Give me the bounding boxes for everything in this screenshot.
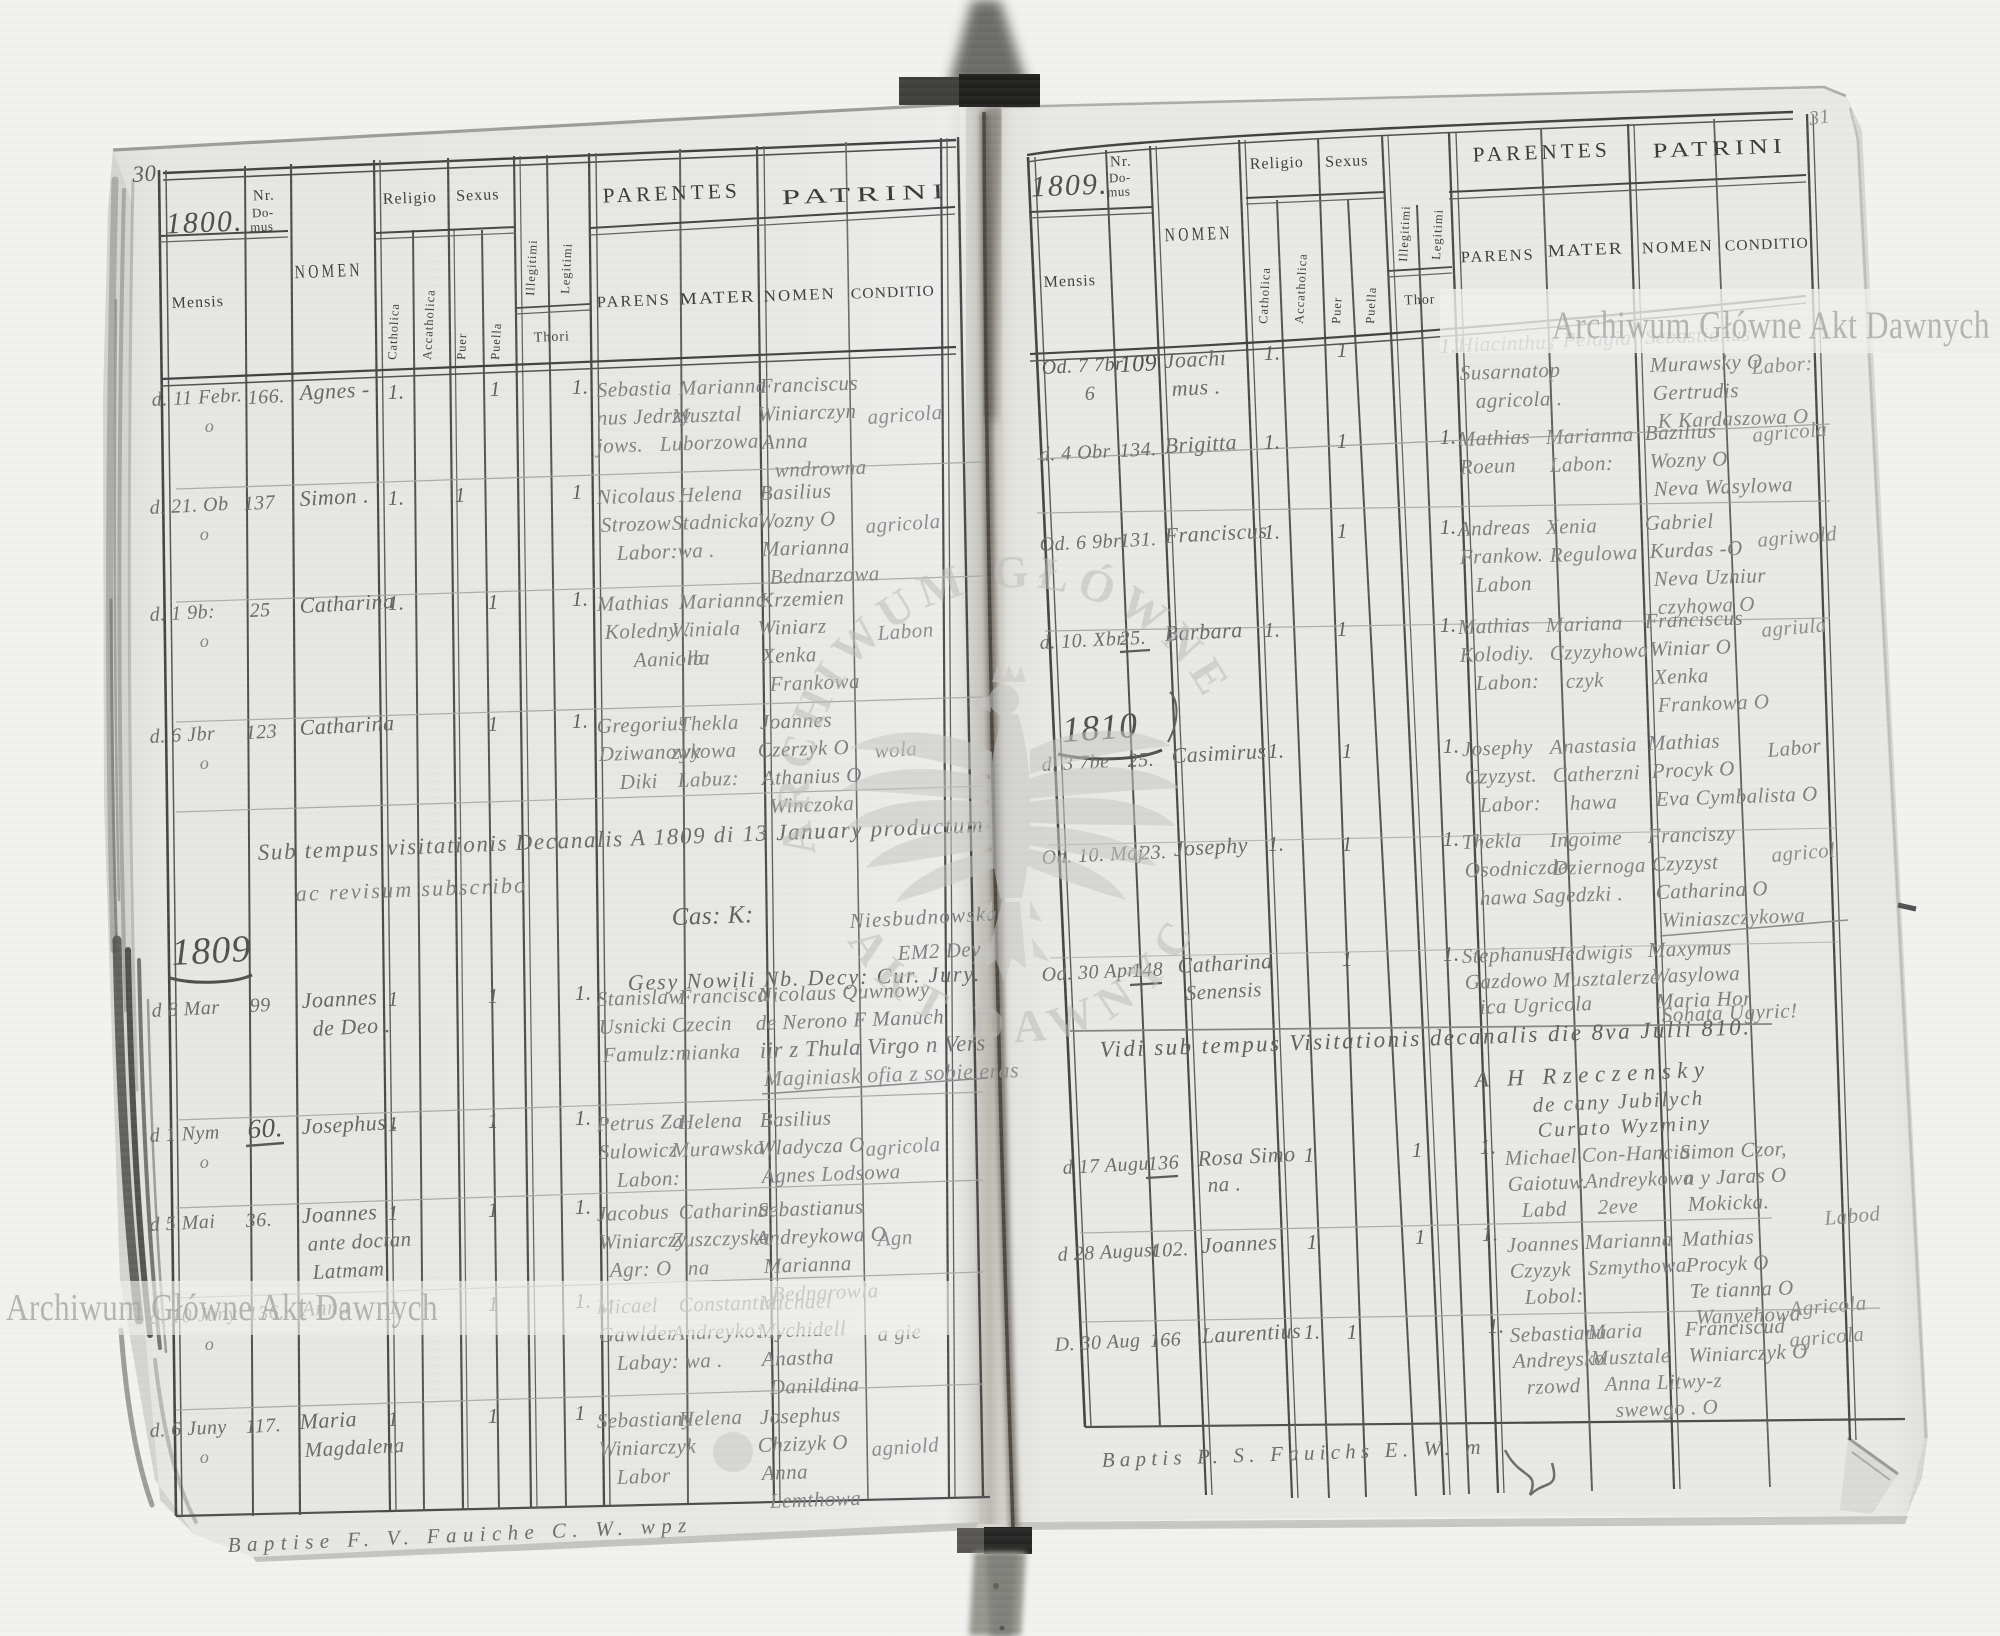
svg-text:Labor:: Labor: — [615, 539, 678, 565]
svg-text:Lemthowa: Lemthowa — [768, 1486, 861, 1513]
svg-text:Czyzyhowa: Czyzyhowa — [1549, 638, 1649, 665]
svg-text:Labod: Labod — [1822, 1201, 1881, 1230]
svg-text:166: 166 — [1149, 1328, 1182, 1352]
svg-text:31: 31 — [1807, 105, 1832, 130]
svg-text:jows.: jows. — [593, 432, 643, 458]
svg-text:Josephy: Josephy — [1461, 735, 1533, 761]
svg-text:Gregorius: Gregorius — [596, 711, 687, 738]
svg-text:Thekla: Thekla — [1461, 828, 1522, 854]
svg-text:30: 30 — [131, 160, 158, 187]
svg-text:D. 30 Aug: D. 30 Aug — [1053, 1330, 1141, 1357]
svg-text:d 8 Mar: d 8 Mar — [151, 996, 220, 1022]
svg-text:1.: 1. — [571, 374, 589, 399]
svg-text:Casimirus: Casimirus — [1171, 738, 1267, 768]
svg-text:Nr.: Nr. — [253, 188, 275, 205]
svg-text:Winiarczyn: Winiarczyn — [757, 399, 856, 426]
svg-text:na .: na . — [1207, 1171, 1242, 1197]
svg-text:25.: 25. — [1127, 749, 1155, 772]
svg-text:Szmythowa: Szmythowa — [1587, 1253, 1687, 1280]
svg-text:Sebastia: Sebastia — [596, 375, 672, 402]
svg-text:Mathias: Mathias — [1456, 424, 1530, 451]
svg-text:o: o — [199, 631, 209, 651]
svg-text:1.: 1. — [387, 590, 405, 615]
svg-text:Mensis: Mensis — [1043, 272, 1096, 291]
svg-text:Maria: Maria — [1586, 1318, 1643, 1344]
svg-text:Marianna: Marianna — [1544, 422, 1634, 449]
svg-text:d. 6 Jbr: d. 6 Jbr — [149, 723, 216, 748]
svg-text:Joachi: Joachi — [1164, 345, 1227, 373]
svg-text:1: 1 — [1336, 519, 1348, 543]
svg-text:o: o — [199, 1152, 209, 1172]
svg-text:Puella: Puella — [1363, 286, 1379, 324]
svg-text:Frankow.: Frankow. — [1458, 542, 1543, 569]
svg-text:Winiala: Winiala — [671, 616, 741, 642]
svg-text:Labor:: Labor: — [1478, 791, 1541, 817]
svg-text:wa .: wa . — [685, 1348, 723, 1373]
svg-text:Gertrudis: Gertrudis — [1652, 378, 1739, 405]
svg-text:Mathias: Mathias — [1680, 1224, 1754, 1251]
svg-text:Labon:: Labon: — [615, 1166, 680, 1192]
svg-text:Catherzni: Catherzni — [1552, 760, 1640, 787]
svg-text:1: 1 — [387, 1407, 399, 1431]
svg-text:123: 123 — [245, 720, 278, 744]
svg-text:Labon: Labon — [1474, 571, 1532, 597]
svg-text:Agnes Lodsowa: Agnes Lodsowa — [759, 1159, 901, 1188]
svg-text:1: 1 — [487, 590, 499, 614]
svg-text:n y Jaras O: n y Jaras O — [1683, 1162, 1787, 1190]
svg-text:Catharina: Catharina — [299, 710, 395, 740]
svg-text:Labor: Labor — [1765, 733, 1822, 762]
svg-text:MATER: MATER — [1547, 239, 1624, 261]
svg-text:Andreykowa O: Andreykowa O — [753, 1221, 886, 1250]
svg-text:1: 1 — [1341, 739, 1353, 763]
svg-text:Stephanus: Stephanus — [1461, 941, 1553, 968]
svg-text:rzowd: rzowd — [1526, 1373, 1581, 1399]
svg-text:Musztale: Musztale — [1589, 1343, 1671, 1370]
svg-text:1: 1 — [1306, 1230, 1318, 1254]
svg-text:Chzizyk O: Chzizyk O — [757, 1430, 848, 1457]
svg-text:Brigitta: Brigitta — [1164, 429, 1238, 458]
svg-text:Josephus .: Josephus . — [301, 1109, 399, 1139]
svg-text:Anna: Anna — [759, 1459, 808, 1485]
svg-text:Luborzowa: Luborzowa — [658, 429, 759, 456]
svg-text:Helena: Helena — [677, 1405, 742, 1431]
svg-text:Mathias: Mathias — [1646, 728, 1720, 755]
svg-text:Czyzyst.: Czyzyst. — [1464, 762, 1537, 789]
svg-text:Simon .: Simon . — [299, 482, 370, 511]
svg-text:1.: 1. — [1303, 1319, 1321, 1344]
svg-text:Helena: Helena — [677, 481, 742, 507]
svg-text:Petrus Za: Petrus Za — [595, 1109, 684, 1136]
svg-text:Catharina: Catharina — [299, 588, 395, 618]
svg-text:Archiwum Główne Akt Dawnych: Archiwum Główne Akt Dawnych — [6, 1287, 438, 1329]
svg-text:Winiarz: Winiarz — [757, 614, 827, 640]
svg-text:d 1 Nym: d 1 Nym — [149, 1121, 220, 1147]
svg-text:Sebastianus: Sebastianus — [757, 1194, 864, 1222]
svg-text:166.: 166. — [247, 385, 285, 409]
svg-text:Puer: Puer — [1329, 297, 1344, 325]
svg-text:na: na — [687, 645, 710, 670]
svg-text:Gazdowo: Gazdowo — [1464, 967, 1548, 994]
svg-text:Franciszy: Franciszy — [1646, 821, 1735, 848]
svg-text:Mariana: Mariana — [1544, 610, 1623, 637]
svg-text:Labay:: Labay: — [615, 1349, 679, 1375]
svg-text:1: 1 — [1411, 1138, 1423, 1162]
svg-text:Catharina O: Catharina O — [1655, 876, 1768, 904]
svg-text:1.: 1. — [1263, 617, 1281, 642]
svg-text:Archiwum Główne Akt Dawnych: Archiwum Główne Akt Dawnych — [1552, 304, 1990, 347]
svg-text:hawa Sagedzki .: hawa Sagedzki . — [1479, 881, 1623, 910]
svg-text:mus: mus — [1107, 184, 1131, 200]
svg-text:Basilius: Basilius — [759, 479, 831, 505]
svg-text:Cas: K:: Cas: K: — [671, 901, 754, 931]
svg-text:Anastha: Anastha — [759, 1344, 834, 1371]
svg-text:Gabriel: Gabriel — [1644, 509, 1714, 535]
svg-text:Labon:: Labon: — [1548, 451, 1613, 477]
svg-text:NOMEN: NOMEN — [1642, 238, 1715, 258]
svg-text:Susarnatop: Susarnatop — [1459, 357, 1560, 384]
svg-text:Senensis: Senensis — [1185, 977, 1262, 1005]
svg-text:1800.: 1800. — [165, 205, 244, 241]
svg-text:Mensis: Mensis — [171, 293, 224, 312]
svg-text:36.: 36. — [244, 1209, 273, 1232]
svg-text:hawa: hawa — [1569, 789, 1617, 815]
svg-text:Labd: Labd — [1520, 1196, 1567, 1222]
svg-text:Te tianna O: Te tianna O — [1689, 1275, 1794, 1303]
svg-text:Strozow: Strozow — [600, 511, 671, 537]
svg-text:Stanislaw: Stanislaw — [596, 984, 683, 1011]
svg-text:Mathias: Mathias — [595, 589, 669, 616]
svg-text:1.: 1. — [574, 980, 592, 1005]
svg-text:Basilius: Basilius — [759, 1106, 831, 1132]
svg-text:Kurdas -O: Kurdas -O — [1648, 536, 1743, 563]
svg-text:agniold: agniold — [871, 1432, 940, 1461]
svg-text:Laurentius: Laurentius — [1200, 1318, 1302, 1348]
svg-text:czyk: czyk — [1565, 668, 1604, 693]
svg-text:Sexus: Sexus — [456, 186, 500, 205]
svg-text:136: 136 — [1147, 1151, 1180, 1175]
svg-text:Anna: Anna — [759, 428, 808, 454]
svg-text:1.: 1. — [574, 1105, 592, 1130]
svg-text:NOMEN: NOMEN — [1164, 223, 1233, 247]
svg-text:o: o — [199, 1447, 209, 1467]
svg-text:1.: 1. — [1263, 519, 1281, 544]
svg-text:Wozny O: Wozny O — [757, 506, 836, 533]
svg-text:117.: 117. — [245, 1414, 282, 1438]
svg-text:Ingoime: Ingoime — [1548, 825, 1622, 852]
svg-text:1: 1 — [387, 987, 399, 1011]
svg-text:1: 1 — [454, 483, 466, 507]
svg-text:1: 1 — [1336, 338, 1348, 362]
svg-text:1.: 1. — [1442, 826, 1460, 851]
svg-text:Dziernoga: Dziernoga — [1551, 853, 1646, 880]
svg-text:1: 1 — [1341, 832, 1353, 856]
svg-text:25: 25 — [249, 599, 271, 622]
svg-text:1: 1 — [1336, 429, 1348, 453]
svg-text:Od. 7 7br: Od. 7 7br — [1041, 353, 1124, 379]
svg-text:1: 1 — [487, 1198, 499, 1222]
svg-text:Usnicki: Usnicki — [598, 1013, 666, 1039]
svg-text:1.: 1. — [1442, 941, 1460, 966]
svg-text:Danildina: Danildina — [768, 1372, 859, 1399]
svg-text:Stadnicka: Stadnicka — [671, 508, 759, 535]
svg-text:Wasylowa: Wasylowa — [1651, 961, 1740, 988]
svg-text:Legitimi: Legitimi — [1429, 208, 1446, 260]
svg-text:1.: 1. — [387, 485, 405, 510]
svg-text:Marianna: Marianna — [677, 587, 767, 614]
svg-text:Labon:: Labon: — [1474, 669, 1539, 695]
svg-text:1809.: 1809. — [1030, 168, 1109, 204]
svg-text:Sulowicz: Sulowicz — [598, 1137, 677, 1164]
svg-text:Xenia: Xenia — [1544, 513, 1597, 539]
svg-text:1809: 1809 — [170, 928, 252, 974]
svg-text:Marianna: Marianna — [762, 1251, 852, 1278]
svg-text:Francisca: Francisca — [677, 982, 768, 1009]
svg-text:1: 1 — [487, 1404, 499, 1428]
svg-text:Thekla: Thekla — [678, 710, 739, 736]
svg-text:Gaiotuw.: Gaiotuw. — [1507, 1169, 1588, 1196]
svg-text:137: 137 — [243, 491, 276, 515]
svg-text:Labor: Labor — [615, 1463, 671, 1489]
svg-text:1: 1 — [1414, 1225, 1426, 1249]
svg-text:Lobol:: Lobol: — [1523, 1283, 1584, 1309]
svg-text:1: 1 — [489, 377, 501, 401]
svg-text:2eve: 2eve — [1597, 1194, 1638, 1219]
svg-text:d 5 Mai: d 5 Mai — [149, 1211, 216, 1236]
svg-text:swewgo . O: swewgo . O — [1615, 1394, 1718, 1422]
svg-text:1: 1 — [1346, 1320, 1358, 1344]
svg-text:99: 99 — [249, 994, 271, 1017]
svg-text:Marianna: Marianna — [760, 534, 850, 561]
svg-text:1.: 1. — [1439, 514, 1457, 539]
svg-text:131.: 131. — [1119, 528, 1157, 552]
svg-text:Winiaszczykowa: Winiaszczykowa — [1661, 903, 1805, 932]
svg-text:Illegitimi: Illegitimi — [1396, 205, 1413, 262]
svg-text:1.: 1. — [571, 586, 589, 611]
svg-text:Hedwigis: Hedwigis — [1548, 939, 1633, 966]
svg-text:PATRINI: PATRINI — [1652, 133, 1787, 162]
svg-text:1: 1 — [487, 1109, 499, 1133]
svg-text:Musztal: Musztal — [670, 402, 742, 428]
svg-text:ica Ugricola: ica Ugricola — [1479, 991, 1593, 1019]
svg-text:Franciscud: Franciscud — [1683, 1313, 1785, 1341]
svg-text:Nicolaus: Nicolaus — [595, 482, 675, 509]
svg-text:na: na — [687, 1255, 710, 1280]
svg-text:MATER: MATER — [679, 287, 756, 309]
svg-text:Marianna: Marianna — [1583, 1227, 1673, 1254]
svg-text:Mokicka.: Mokicka. — [1686, 1189, 1769, 1216]
svg-text:CONDITIO: CONDITIO — [1725, 235, 1810, 254]
svg-text:1.: 1. — [1481, 1221, 1499, 1246]
svg-text:Puella: Puella — [488, 322, 504, 360]
svg-text:mus .: mus . — [1171, 373, 1221, 401]
svg-text:Joannes: Joannes — [301, 984, 378, 1013]
svg-text:Bazilius: Bazilius — [1644, 419, 1716, 445]
svg-text:d. 21. Ob: d. 21. Ob — [149, 493, 229, 519]
svg-text:Sexus: Sexus — [1325, 152, 1369, 171]
svg-text:Legitimi: Legitimi — [558, 242, 575, 294]
svg-text:Agnes -: Agnes - — [297, 376, 370, 405]
svg-text:Michael: Michael — [1503, 1143, 1577, 1170]
svg-text:Labor:: Labor: — [1750, 351, 1814, 379]
svg-text:Josephus: Josephus — [759, 1402, 841, 1429]
svg-text:Czyzyst: Czyzyst — [1651, 850, 1719, 876]
svg-text:wa .: wa . — [677, 538, 715, 563]
svg-text:1: 1 — [1336, 617, 1348, 641]
svg-text:1.: 1. — [1263, 340, 1281, 365]
svg-text:Joannes: Joannes — [1201, 1229, 1278, 1258]
svg-text:mus: mus — [250, 219, 274, 235]
svg-text:1.: 1. — [1442, 733, 1460, 758]
svg-text:Catharina: Catharina — [678, 1197, 770, 1224]
svg-text:Murawska: Murawska — [670, 1135, 764, 1162]
svg-text:60.: 60. — [247, 1112, 284, 1144]
svg-text:d. 6 Juny: d. 6 Juny — [149, 1416, 227, 1442]
svg-text:Josephy: Josephy — [1173, 832, 1249, 861]
svg-text:Wladycza O: Wladycza O — [757, 1132, 865, 1160]
svg-text:PARENS: PARENS — [1461, 247, 1536, 267]
svg-text:1.: 1. — [1439, 424, 1457, 449]
svg-text:Franciscus: Franciscus — [1643, 606, 1743, 633]
svg-text:1: 1 — [1303, 1143, 1315, 1167]
svg-text:Neva Wasylowa: Neva Wasylowa — [1652, 472, 1793, 501]
svg-text:Czyzyk: Czyzyk — [1509, 1257, 1571, 1283]
svg-text:Andreas: Andreas — [1455, 514, 1531, 541]
svg-text:Illegitimi: Illegitimi — [523, 239, 540, 296]
svg-text:Diki: Diki — [618, 769, 658, 794]
svg-text:d. 1 9b:: d. 1 9b: — [149, 601, 216, 626]
svg-text:Jacobus: Jacobus — [596, 1199, 669, 1226]
svg-text:agricola .: agricola . — [1475, 386, 1562, 413]
svg-text:Catholica: Catholica — [385, 303, 402, 361]
svg-text:Murawsky O: Murawsky O — [1648, 349, 1763, 377]
svg-text:Thor: Thor — [1404, 292, 1436, 308]
svg-text:1.: 1. — [1267, 738, 1285, 763]
svg-text:Neva Uzniur: Neva Uzniur — [1652, 563, 1766, 591]
svg-text:1.: 1. — [1263, 429, 1281, 454]
svg-text:1: 1 — [387, 1201, 399, 1225]
svg-text:1.: 1. — [574, 1194, 592, 1219]
svg-text:Religio: Religio — [382, 189, 437, 208]
svg-text:134.: 134. — [1119, 438, 1157, 462]
svg-text:Frankowa O: Frankowa O — [1656, 689, 1770, 717]
svg-text:Wozny O: Wozny O — [1649, 446, 1728, 473]
svg-text:o: o — [204, 1334, 214, 1354]
svg-text:o: o — [199, 753, 209, 773]
svg-text:Roeun: Roeun — [1458, 453, 1516, 479]
svg-text:Xenka: Xenka — [1652, 663, 1709, 689]
svg-text:1.: 1. — [1479, 1134, 1497, 1159]
svg-text:Anastasia: Anastasia — [1547, 732, 1637, 759]
svg-text:1.: 1. — [1487, 1313, 1505, 1338]
svg-text:Krzemien: Krzemien — [758, 585, 844, 612]
svg-text:1: 1 — [574, 1401, 586, 1425]
svg-text:d 17 Augu: d 17 Augu — [1062, 1153, 1149, 1179]
svg-text:Andreykowa: Andreykowa — [1582, 1165, 1694, 1193]
svg-text:CONDITIO: CONDITIO — [851, 283, 936, 302]
svg-text:109: 109 — [1119, 350, 1158, 378]
svg-text:PARENS: PARENS — [597, 292, 672, 312]
svg-text:1: 1 — [387, 1112, 399, 1136]
svg-text:Marianna: Marianna — [677, 373, 767, 400]
svg-text:Musztalerze: Musztalerze — [1551, 964, 1660, 992]
svg-text:Religio: Religio — [1249, 154, 1304, 173]
svg-text:Famulz:: Famulz: — [601, 1040, 676, 1067]
svg-text:1: 1 — [487, 984, 499, 1008]
svg-text:NOMEN: NOMEN — [764, 286, 837, 306]
svg-text:1.: 1. — [1267, 831, 1285, 856]
svg-text:Kolodiy.: Kolodiy. — [1458, 640, 1534, 667]
svg-text:Regulowa: Regulowa — [1548, 540, 1638, 567]
svg-text:1.: 1. — [1439, 612, 1457, 637]
svg-text:1: 1 — [487, 712, 499, 736]
svg-text:Anna Litwy-z: Anna Litwy-z — [1602, 1368, 1722, 1396]
svg-text:Labuz:: Labuz: — [676, 766, 739, 792]
svg-text:Rosa Simo: Rosa Simo — [1196, 1141, 1296, 1171]
svg-text:d. 4 Obr: d. 4 Obr — [1039, 440, 1111, 466]
svg-text:Simon Czor,: Simon Czor, — [1679, 1136, 1787, 1164]
svg-text:o: o — [199, 524, 209, 544]
svg-text:Czecin: Czecin — [671, 1011, 732, 1037]
svg-text:NOMEN: NOMEN — [294, 260, 363, 284]
svg-text:Franciscus: Franciscus — [758, 371, 858, 398]
svg-text:Con-Hancia: Con-Hancia — [1581, 1139, 1691, 1167]
svg-text:Joannes: Joannes — [301, 1199, 378, 1228]
svg-text:102.: 102. — [1151, 1238, 1189, 1262]
svg-text:1.: 1. — [387, 379, 405, 404]
svg-text:Thori: Thori — [534, 329, 571, 345]
svg-text:Agr: O: Agr: O — [607, 1256, 672, 1282]
svg-text:de Deo .: de Deo . — [312, 1012, 391, 1041]
svg-text:zykowa: zykowa — [670, 738, 737, 764]
svg-text:Agn: Agn — [875, 1225, 914, 1252]
svg-text:Puer: Puer — [454, 333, 469, 361]
svg-text:Nr.: Nr. — [1110, 154, 1132, 171]
svg-text:Procyk O: Procyk O — [1650, 756, 1735, 783]
svg-text:Helena: Helena — [677, 1108, 742, 1134]
svg-text:Maxymus: Maxymus — [1646, 935, 1732, 962]
svg-text:1: 1 — [571, 480, 583, 504]
svg-text:1: 1 — [1341, 947, 1353, 971]
svg-text:Mathias: Mathias — [1456, 612, 1530, 639]
svg-text:1.: 1. — [571, 708, 589, 733]
svg-text:Catholica: Catholica — [1256, 267, 1273, 325]
svg-text:Procyk O: Procyk O — [1684, 1250, 1769, 1277]
svg-text:Joannes: Joannes — [1506, 1230, 1579, 1257]
svg-text:Maria: Maria — [298, 1406, 358, 1434]
svg-text:Winiarczyk: Winiarczyk — [598, 1434, 696, 1461]
svg-text:Winiar O: Winiar O — [1649, 634, 1731, 661]
svg-text:d. 10. Xbr: d. 10. Xbr — [1039, 628, 1125, 654]
svg-text:Latmam: Latmam — [311, 1256, 385, 1284]
svg-text:6: 6 — [1084, 383, 1095, 405]
svg-text:o: o — [204, 416, 214, 436]
svg-text:mianka: mianka — [675, 1039, 741, 1065]
